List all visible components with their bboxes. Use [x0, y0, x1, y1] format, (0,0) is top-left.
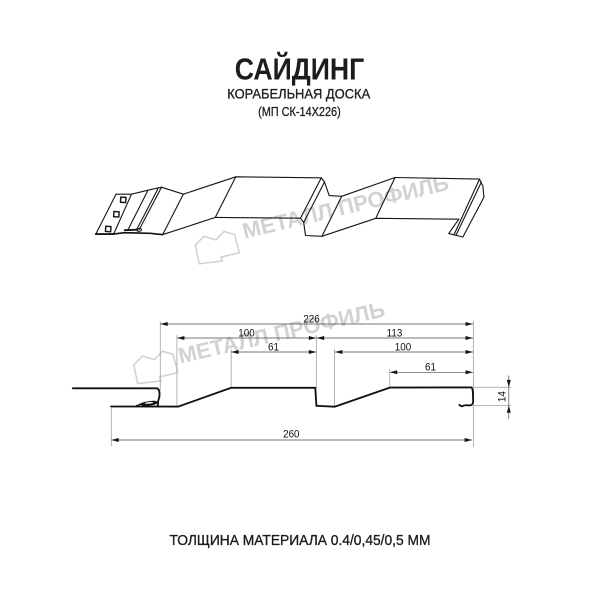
svg-text:61: 61	[268, 341, 279, 354]
svg-text:100: 100	[395, 341, 411, 354]
svg-text:61: 61	[425, 361, 436, 374]
svg-text:КОРАБЕЛЬНАЯ ДОСКА: КОРАБЕЛЬНАЯ ДОСКА	[227, 86, 370, 102]
svg-text:100: 100	[238, 327, 254, 340]
svg-text:226: 226	[303, 313, 319, 326]
svg-text:(МП СК-14Х226): (МП СК-14Х226)	[258, 105, 341, 119]
svg-text:14: 14	[496, 391, 509, 402]
svg-text:260: 260	[283, 428, 299, 441]
svg-text:113: 113	[387, 327, 403, 340]
svg-text:МЕТАЛЛ ПРОФИЛЬ: МЕТАЛЛ ПРОФИЛЬ	[240, 170, 452, 244]
svg-text:ТОЛЩИНА МАТЕРИАЛА 0.4/0,45/0,5: ТОЛЩИНА МАТЕРИАЛА 0.4/0,45/0,5 ММ	[169, 532, 430, 549]
svg-text:МЕТАЛЛ ПРОФИЛЬ: МЕТАЛЛ ПРОФИЛЬ	[176, 297, 388, 369]
svg-text:САЙДИНГ: САЙДИНГ	[235, 51, 365, 87]
